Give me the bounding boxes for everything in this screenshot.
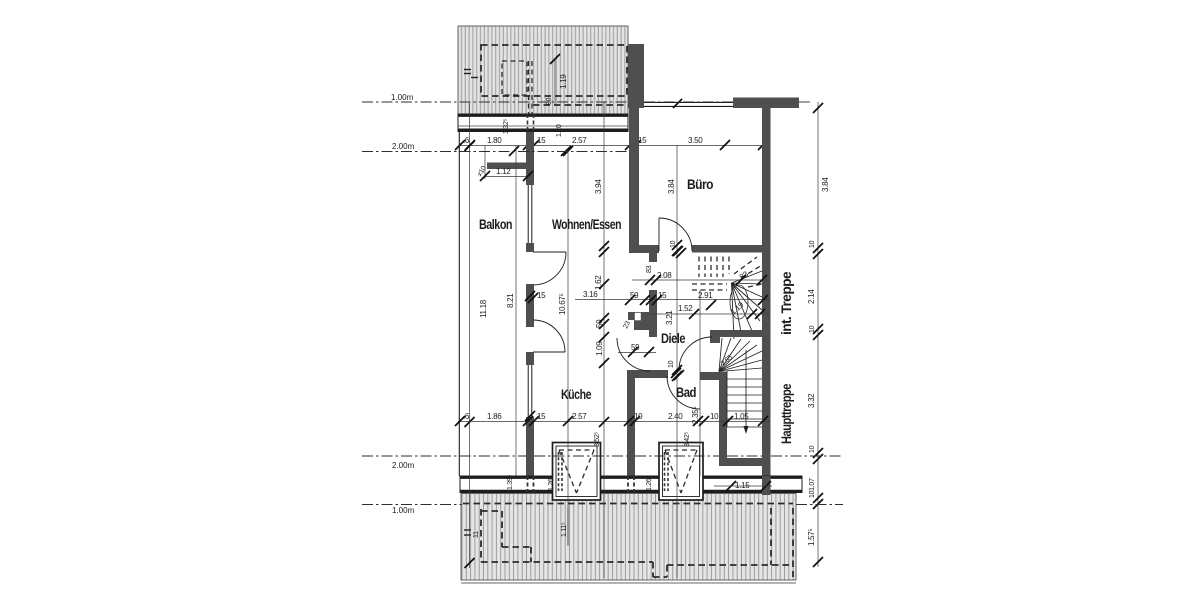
svg-text:3.21: 3.21 <box>665 310 674 325</box>
svg-text:2.40: 2.40 <box>668 412 683 421</box>
svg-text:1.80: 1.80 <box>487 136 502 145</box>
svg-text:.6: .6 <box>463 136 470 145</box>
svg-text:2.14: 2.14 <box>807 289 816 304</box>
svg-text:11: 11 <box>473 531 480 538</box>
svg-text:Wohnen/Essen: Wohnen/Essen <box>552 216 621 232</box>
svg-text:1.57⁵: 1.57⁵ <box>807 529 816 546</box>
svg-text:15: 15 <box>537 412 546 421</box>
svg-text:15: 15 <box>658 291 667 300</box>
svg-text:83: 83 <box>646 265 653 273</box>
svg-text:1.20: 1.20 <box>556 124 563 137</box>
svg-text:1.86: 1.86 <box>487 412 502 421</box>
svg-text:Haupttreppe: Haupttreppe <box>778 383 794 444</box>
svg-text:2.00m: 2.00m <box>392 461 415 470</box>
svg-text:.6: .6 <box>463 412 470 421</box>
svg-text:1.32⁵: 1.32⁵ <box>503 119 510 134</box>
svg-text:1.15: 1.15 <box>735 481 750 490</box>
svg-text:Büro: Büro <box>687 176 713 192</box>
svg-text:1.19: 1.19 <box>559 74 568 89</box>
svg-text:3.32: 3.32 <box>807 393 816 408</box>
svg-text:10: 10 <box>668 360 675 368</box>
svg-text:15: 15 <box>537 291 546 300</box>
svg-text:11.18: 11.18 <box>479 299 488 318</box>
svg-text:3.42⁵: 3.42⁵ <box>684 432 691 447</box>
svg-text:2.91: 2.91 <box>698 291 713 300</box>
svg-text:1.09: 1.09 <box>595 341 604 356</box>
svg-text:3.94: 3.94 <box>594 179 603 194</box>
svg-text:10: 10 <box>809 240 816 248</box>
svg-text:1.00m: 1.00m <box>392 506 415 515</box>
svg-text:10: 10 <box>634 412 643 421</box>
svg-text:int. Treppe: int. Treppe <box>778 271 794 335</box>
svg-text:1.12: 1.12 <box>496 167 511 176</box>
svg-text:1.11⁵: 1.11⁵ <box>561 522 568 537</box>
svg-text:15: 15 <box>638 136 647 145</box>
svg-text:10: 10 <box>710 412 719 421</box>
svg-text:2.08: 2.08 <box>657 271 672 280</box>
svg-text:3.16: 3.16 <box>583 290 598 299</box>
svg-text:59: 59 <box>631 343 640 352</box>
svg-text:8.21: 8.21 <box>506 293 515 308</box>
svg-text:1.39⁵: 1.39⁵ <box>507 475 514 490</box>
svg-text:2.57: 2.57 <box>572 136 587 145</box>
svg-text:2.00m: 2.00m <box>392 142 415 151</box>
svg-text:10.67⁵: 10.67⁵ <box>558 293 567 315</box>
svg-text:10: 10 <box>809 445 816 453</box>
svg-text:1.05: 1.05 <box>734 412 749 421</box>
svg-text:Diele: Diele <box>661 330 686 346</box>
svg-text:59: 59 <box>630 291 639 300</box>
svg-text:3.84: 3.84 <box>667 179 676 194</box>
svg-text:90: 90 <box>546 97 553 105</box>
svg-text:1.62: 1.62 <box>594 275 603 290</box>
svg-text:1.00m: 1.00m <box>391 93 414 102</box>
svg-text:3.52⁵: 3.52⁵ <box>594 432 601 447</box>
svg-text:Bad: Bad <box>676 384 696 400</box>
svg-text:1.26⁵: 1.26⁵ <box>646 476 653 491</box>
svg-text:10: 10 <box>809 325 816 333</box>
svg-text:3.84: 3.84 <box>821 177 830 192</box>
svg-text:Balkon: Balkon <box>479 216 512 232</box>
svg-text:2.57: 2.57 <box>572 412 587 421</box>
svg-text:1.52: 1.52 <box>678 304 693 313</box>
svg-text:101.07: 101.07 <box>809 478 816 498</box>
svg-text:15: 15 <box>537 136 546 145</box>
svg-text:Küche: Küche <box>561 386 592 402</box>
svg-text:3.50: 3.50 <box>688 136 703 145</box>
